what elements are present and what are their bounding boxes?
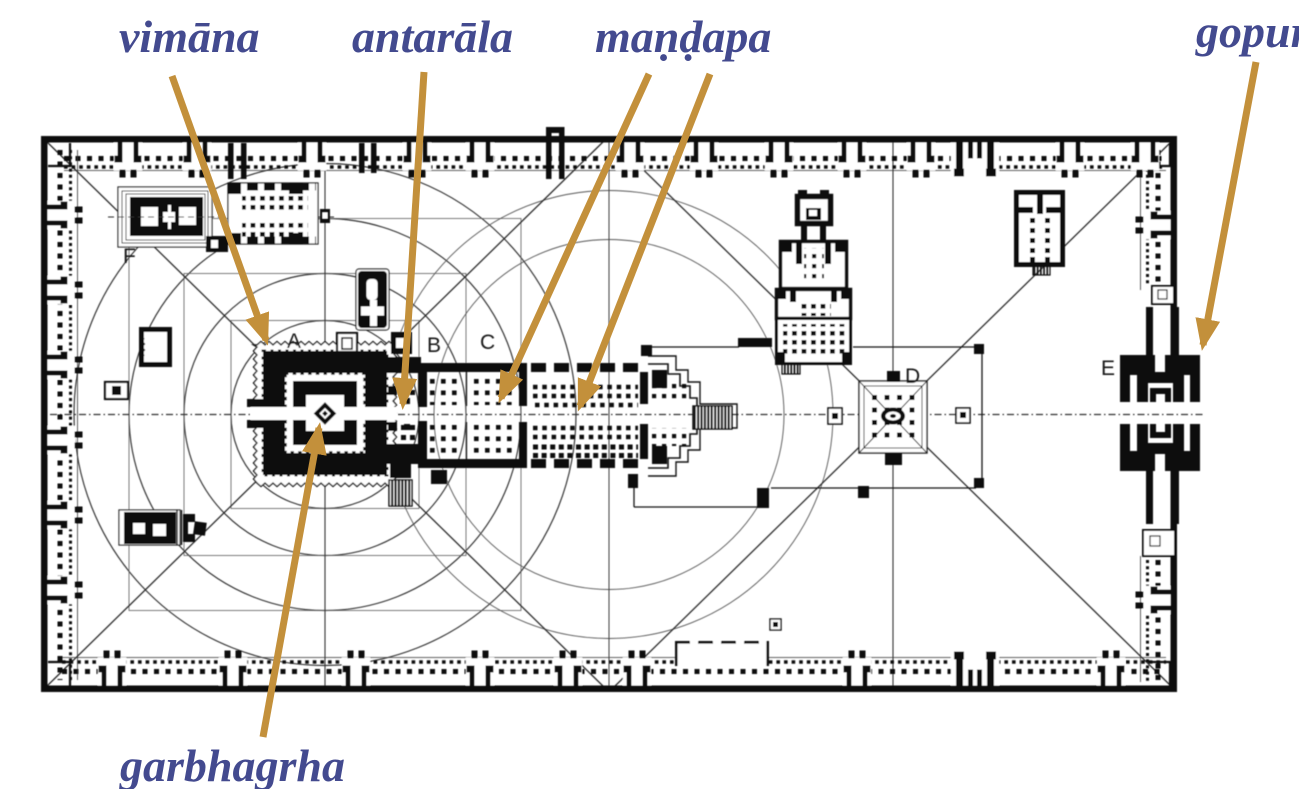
svg-text:garbhagrha: garbhagrha: [119, 740, 345, 789]
svg-text:D: D: [905, 365, 920, 388]
svg-text:antarāla: antarāla: [352, 11, 513, 62]
svg-text:E: E: [1101, 357, 1115, 380]
svg-text:maṇḍapa: maṇḍapa: [595, 11, 771, 62]
svg-text:F: F: [123, 245, 136, 268]
svg-text:vimāna: vimāna: [119, 11, 260, 62]
svg-text:B: B: [427, 334, 441, 357]
svg-text:gopuram: gopuram: [1195, 6, 1299, 57]
svg-text:A: A: [287, 330, 301, 353]
svg-text:C: C: [480, 331, 495, 354]
